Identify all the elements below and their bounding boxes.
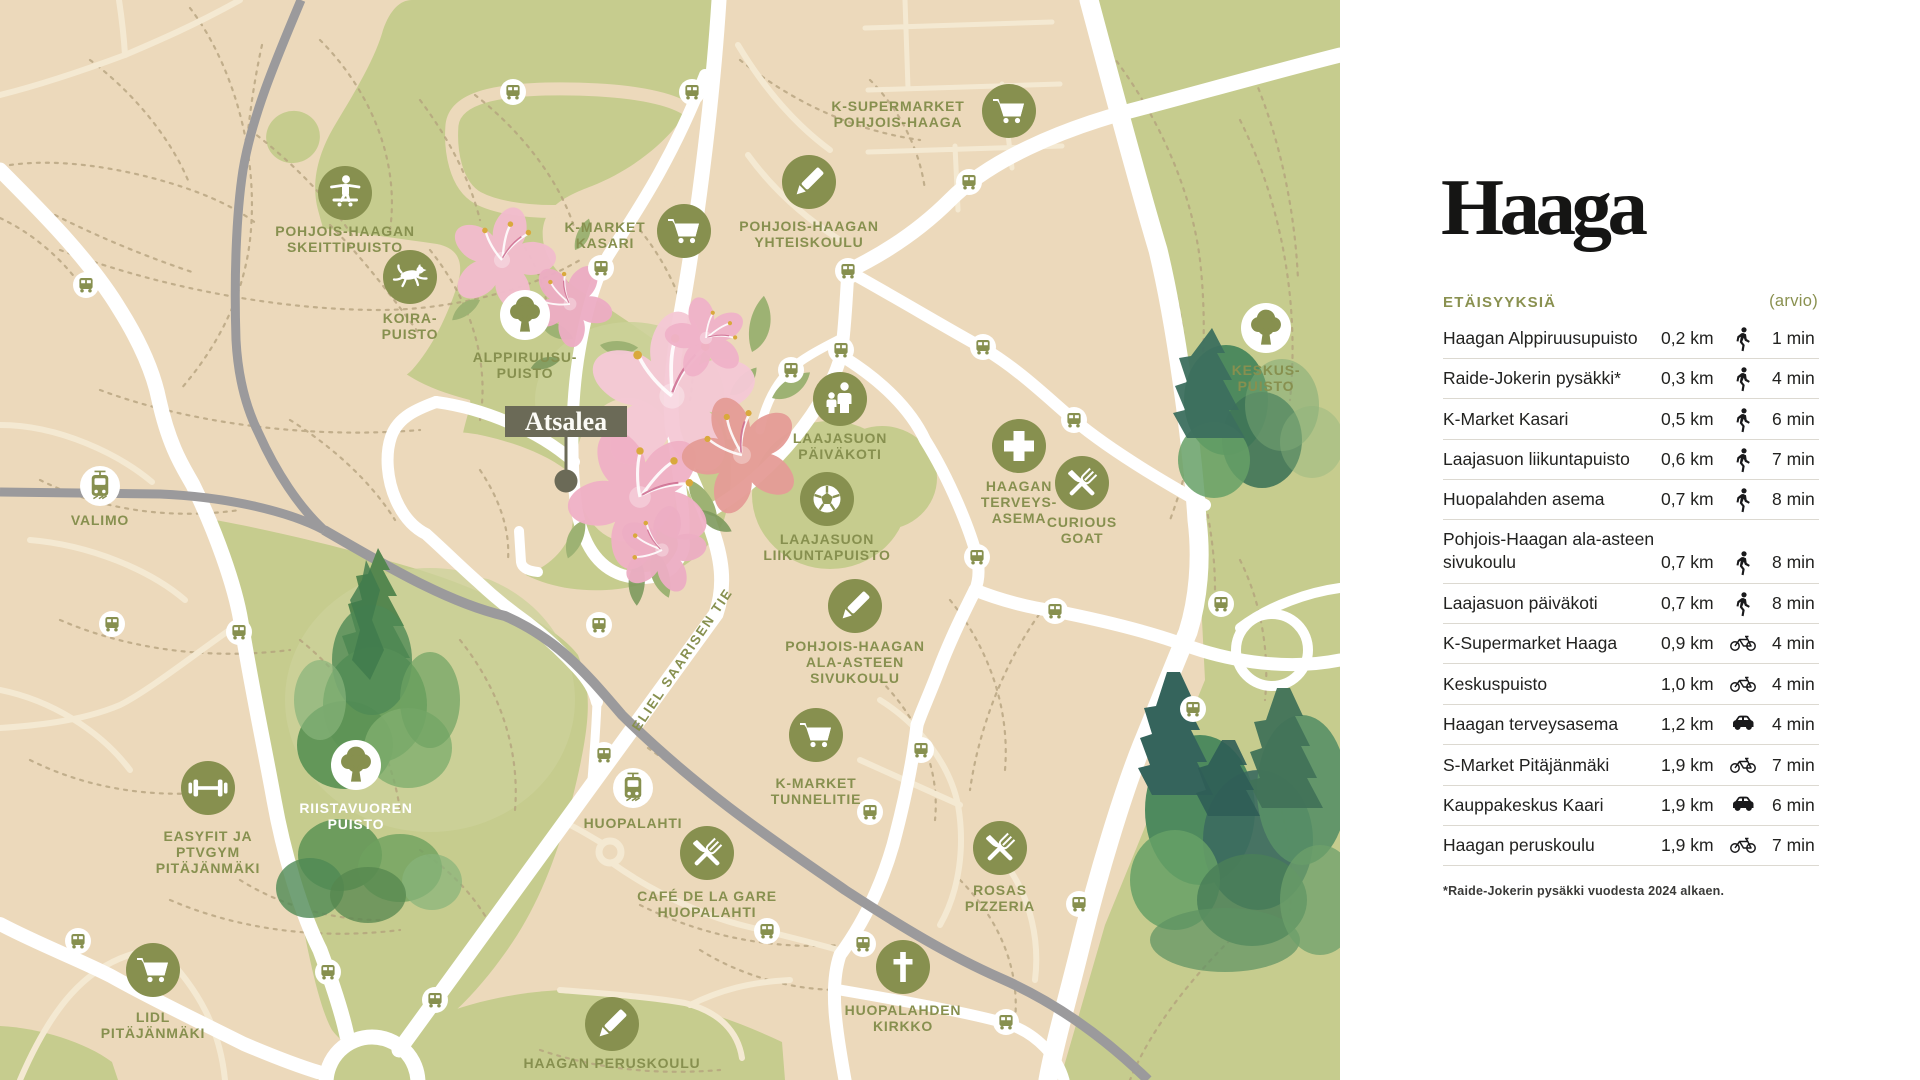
svg-text:KESKUS-: KESKUS- bbox=[1232, 362, 1301, 378]
svg-text:LAAJASUON: LAAJASUON bbox=[780, 531, 874, 547]
svg-text:CURIOUS: CURIOUS bbox=[1047, 514, 1117, 530]
svg-text:K-SUPERMARKET: K-SUPERMARKET bbox=[831, 98, 964, 114]
svg-text:SIVUKOULU: SIVUKOULU bbox=[810, 670, 900, 686]
svg-text:PITÄJÄNMÄKI: PITÄJÄNMÄKI bbox=[156, 860, 260, 876]
svg-text:PUISTO: PUISTO bbox=[328, 816, 385, 832]
svg-text:POHJOIS-HAAGAN: POHJOIS-HAAGAN bbox=[785, 638, 925, 654]
svg-text:Atsalea: Atsalea bbox=[525, 407, 607, 436]
svg-text:ROSAS: ROSAS bbox=[973, 882, 1027, 898]
svg-text:KASARI: KASARI bbox=[576, 235, 634, 251]
svg-text:HUOPALAHDEN: HUOPALAHDEN bbox=[845, 1002, 962, 1018]
svg-text:HAAGAN: HAAGAN bbox=[986, 478, 1052, 494]
svg-text:VALIMO: VALIMO bbox=[71, 512, 129, 528]
svg-text:POHJOIS-HAAGAN: POHJOIS-HAAGAN bbox=[275, 223, 415, 239]
svg-text:PÄIVÄKOTI: PÄIVÄKOTI bbox=[798, 446, 881, 462]
svg-text:HAAGAN PERUSKOULU: HAAGAN PERUSKOULU bbox=[524, 1055, 701, 1071]
svg-text:EASYFIT JA: EASYFIT JA bbox=[164, 828, 253, 844]
svg-text:PITÄJÄNMÄKI: PITÄJÄNMÄKI bbox=[101, 1025, 205, 1041]
svg-text:HUOPALAHTI: HUOPALAHTI bbox=[584, 815, 683, 831]
svg-text:KIRKKO: KIRKKO bbox=[873, 1018, 933, 1034]
svg-text:POHJOIS-HAAGA: POHJOIS-HAAGA bbox=[834, 114, 963, 130]
svg-text:PTVGYM: PTVGYM bbox=[176, 844, 240, 860]
svg-text:POHJOIS-HAAGAN: POHJOIS-HAAGAN bbox=[739, 218, 879, 234]
svg-text:CAFÉ DE LA GARE: CAFÉ DE LA GARE bbox=[637, 888, 777, 904]
svg-text:YHTEISKOULU: YHTEISKOULU bbox=[754, 234, 863, 250]
svg-text:K-MARKET: K-MARKET bbox=[775, 775, 856, 791]
svg-text:ALA-ASTEEN: ALA-ASTEEN bbox=[806, 654, 904, 670]
svg-text:TUNNELITIE: TUNNELITIE bbox=[771, 791, 861, 807]
svg-text:GOAT: GOAT bbox=[1061, 530, 1104, 546]
svg-text:LIDL: LIDL bbox=[136, 1009, 170, 1025]
svg-text:K-MARKET: K-MARKET bbox=[564, 219, 645, 235]
svg-text:ALPPIRUUSU-: ALPPIRUUSU- bbox=[473, 349, 577, 365]
svg-text:KOIRA-: KOIRA- bbox=[383, 310, 438, 326]
svg-text:HUOPALAHTI: HUOPALAHTI bbox=[658, 904, 757, 920]
svg-text:RIISTAVUOREN: RIISTAVUOREN bbox=[299, 800, 412, 816]
svg-text:ASEMA: ASEMA bbox=[992, 510, 1047, 526]
svg-text:TERVEYS-: TERVEYS- bbox=[981, 494, 1057, 510]
svg-text:SKEITTIPUISTO: SKEITTIPUISTO bbox=[287, 239, 403, 255]
svg-text:LAAJASUON: LAAJASUON bbox=[793, 430, 887, 446]
svg-text:PUISTO: PUISTO bbox=[382, 326, 439, 342]
svg-text:LIIKUNTAPUISTO: LIIKUNTAPUISTO bbox=[763, 547, 890, 563]
svg-text:PUISTO: PUISTO bbox=[1238, 378, 1295, 394]
svg-text:PIZZERIA: PIZZERIA bbox=[965, 898, 1035, 914]
svg-text:PUISTO: PUISTO bbox=[497, 365, 554, 381]
